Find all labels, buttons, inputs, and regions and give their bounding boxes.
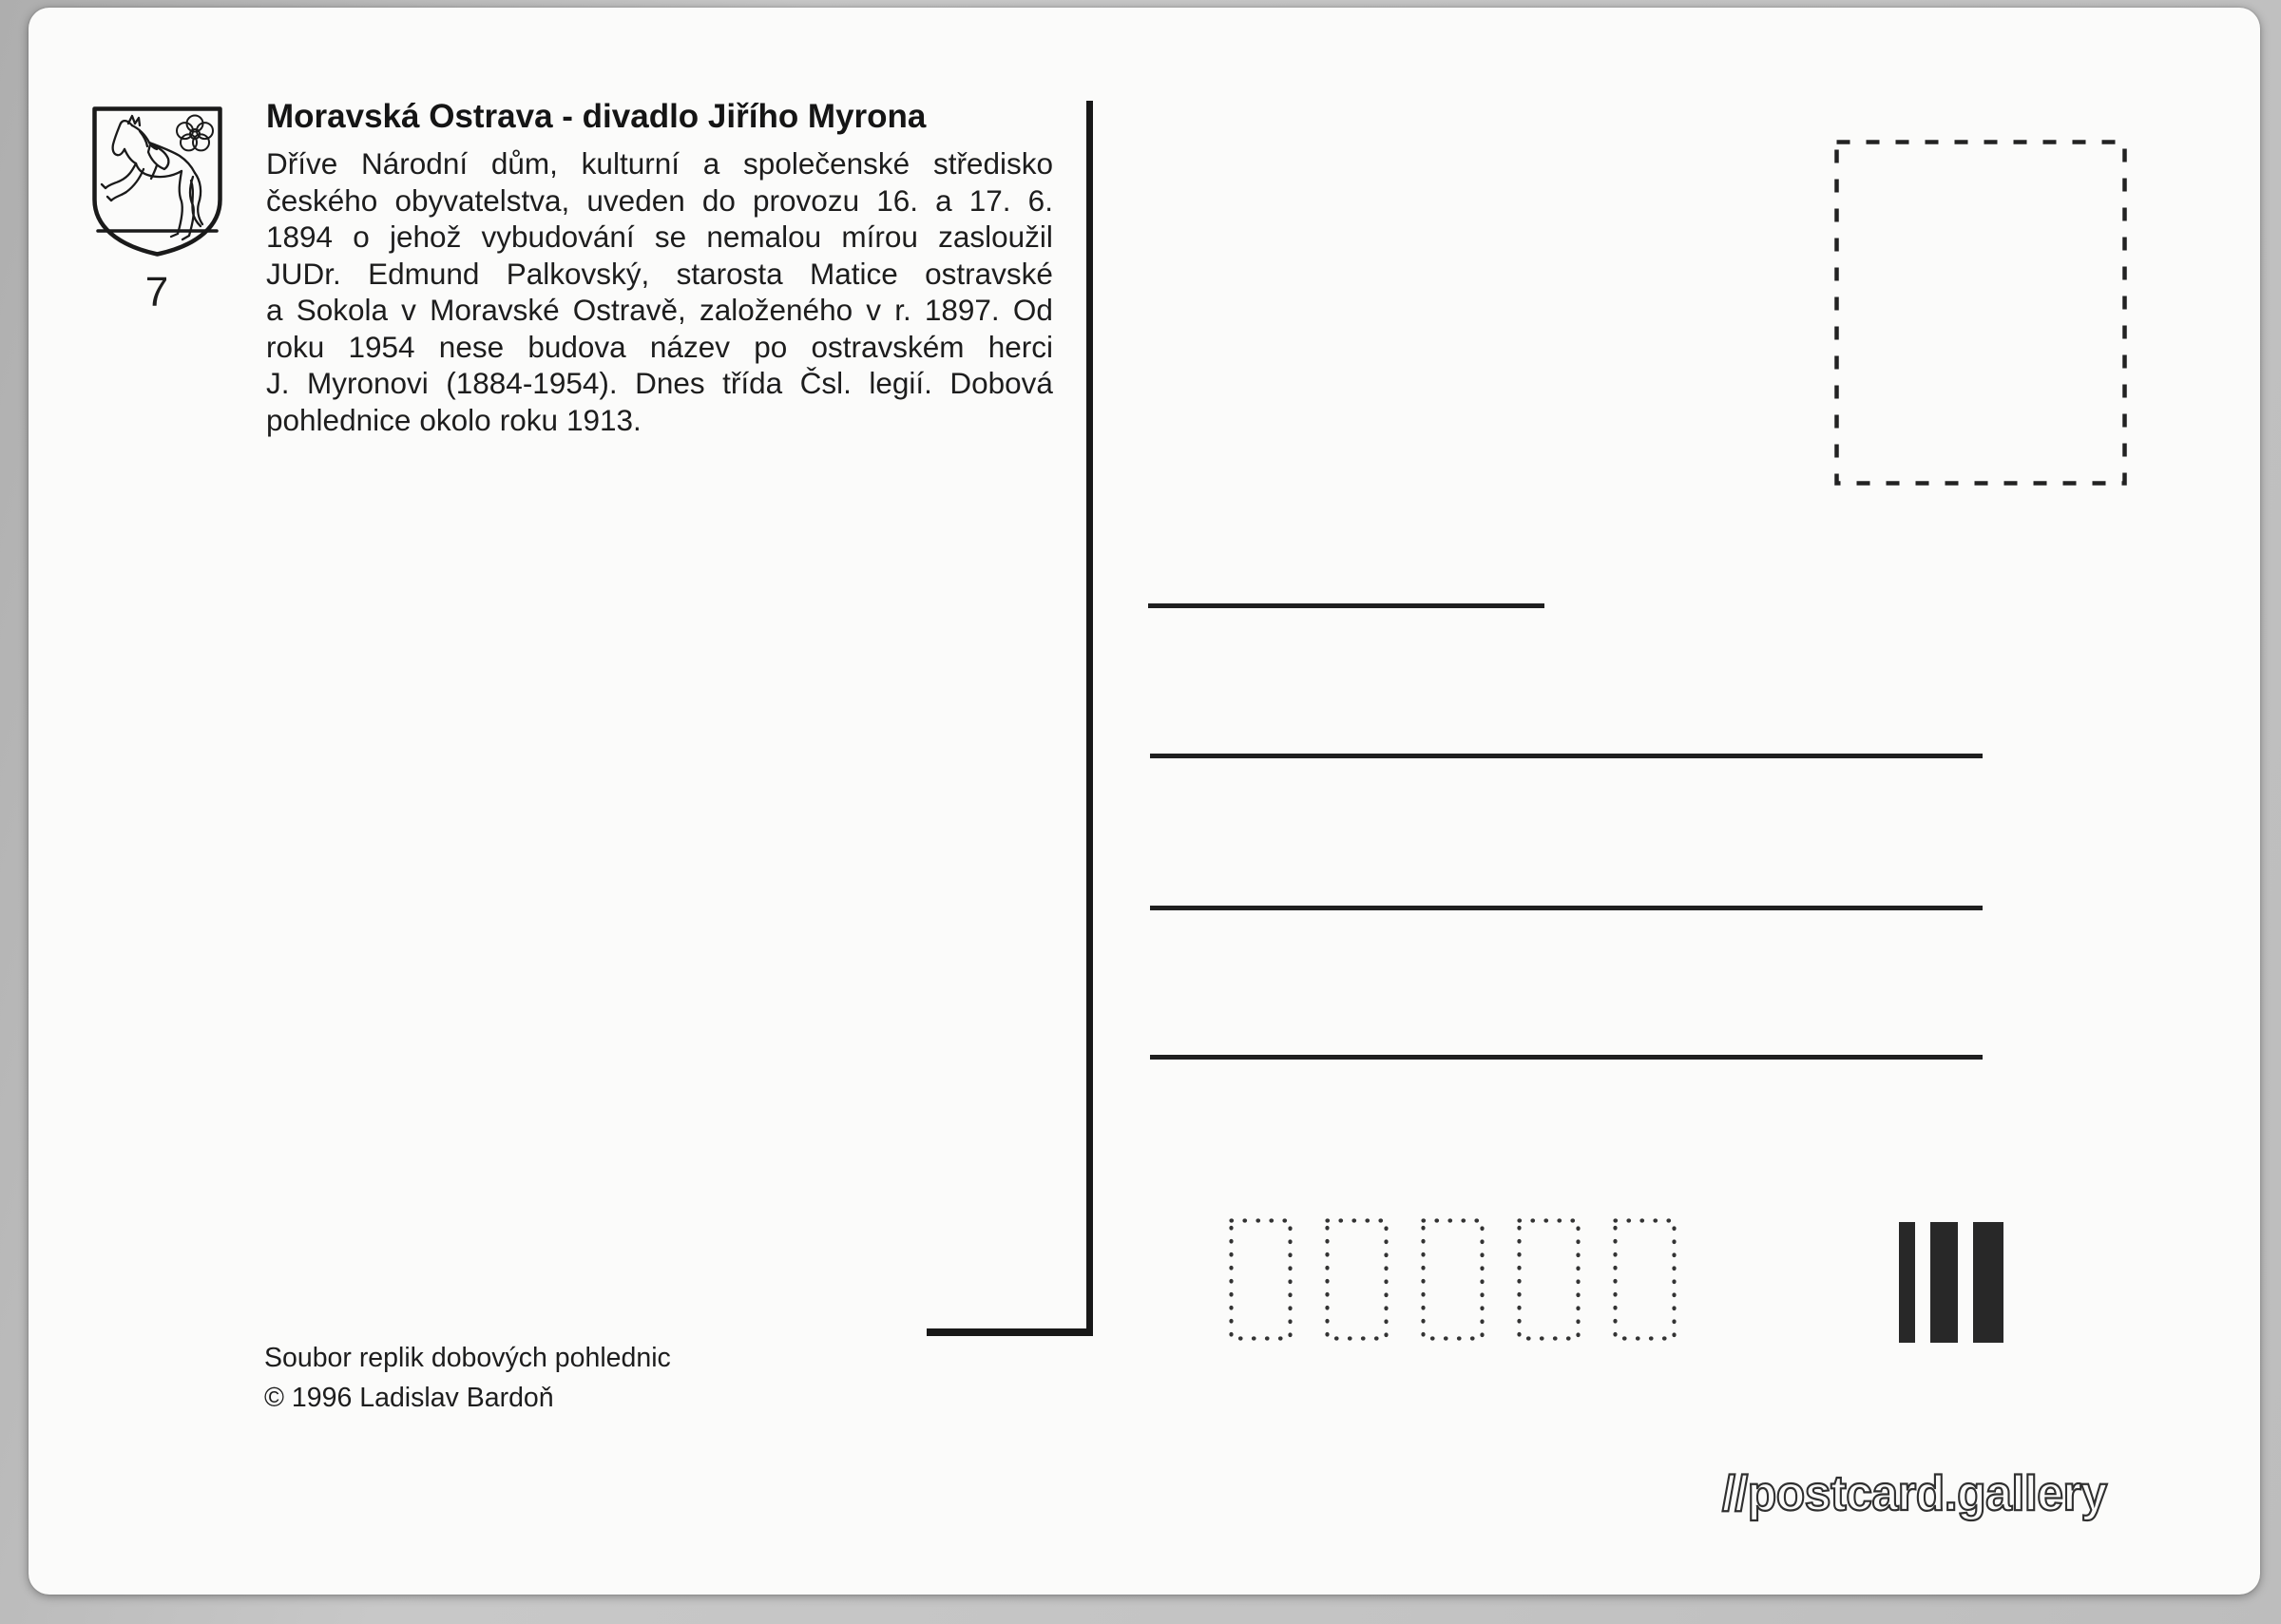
description-line: aSokolavMoravskéOstravě,založenéhovr.189… — [266, 292, 1053, 329]
description-line: roku1954nesebudovanázevpoostravskémherci — [266, 329, 1053, 366]
description-line: DříveNárodnídům,kulturníaspolečenskéstře… — [266, 145, 1053, 182]
address-line-3 — [1150, 1055, 1983, 1060]
description-line: pohledniceokoloroku1913. — [266, 402, 1053, 439]
address-line-2 — [1150, 906, 1983, 910]
publisher-credit: Soubor replik dobových pohlednic © 1996 … — [264, 1338, 671, 1418]
postal-code-box — [1616, 1221, 1675, 1339]
publisher-line1: Soubor replik dobových pohlednic — [264, 1338, 671, 1378]
stamp-box — [1834, 140, 2127, 486]
address-line-1 — [1150, 754, 1983, 758]
divider-vertical-line — [1086, 101, 1093, 1328]
postal-code-box — [1424, 1221, 1483, 1339]
sorting-bars — [1899, 1222, 2003, 1343]
postal-code-box — [1328, 1221, 1387, 1339]
series-number: 7 — [81, 272, 233, 314]
crest: 7 — [81, 105, 233, 314]
postcard-title: Moravská Ostrava - divadlo Jiřího Myrona — [266, 97, 1083, 137]
ostrava-coat-of-arms-icon — [90, 105, 224, 258]
postcard-description: DříveNárodnídům,kulturníaspolečenskéstře… — [266, 145, 1053, 438]
postal-code-boxes — [1229, 1218, 1680, 1344]
publisher-line2: © 1996 Ladislav Bardoň — [264, 1378, 671, 1418]
sorting-bar — [1973, 1222, 2003, 1343]
description-line: J.Myronovi(1884-1954).DnestřídaČsl.legií… — [266, 365, 1053, 402]
postcard-back: 7 Moravská Ostrava - divadlo Jiřího Myro… — [29, 8, 2260, 1595]
gallery-watermark: //postcard.gallery — [1722, 1465, 2107, 1522]
sender-line — [1148, 603, 1544, 608]
description-line: českéhoobyvatelstva,uvedendoprovozu16.a1… — [266, 182, 1053, 220]
sorting-bar — [1899, 1222, 1915, 1343]
postal-code-box — [1520, 1221, 1579, 1339]
description-line: JUDr.EdmundPalkovský,starostaMaticeostra… — [266, 256, 1053, 293]
description-line: 1894ojehožvybudovánísenemaloumírouzaslou… — [266, 219, 1053, 256]
divider-foot-line — [927, 1328, 1093, 1336]
sorting-bar — [1930, 1222, 1958, 1343]
postal-code-box — [1232, 1221, 1291, 1339]
